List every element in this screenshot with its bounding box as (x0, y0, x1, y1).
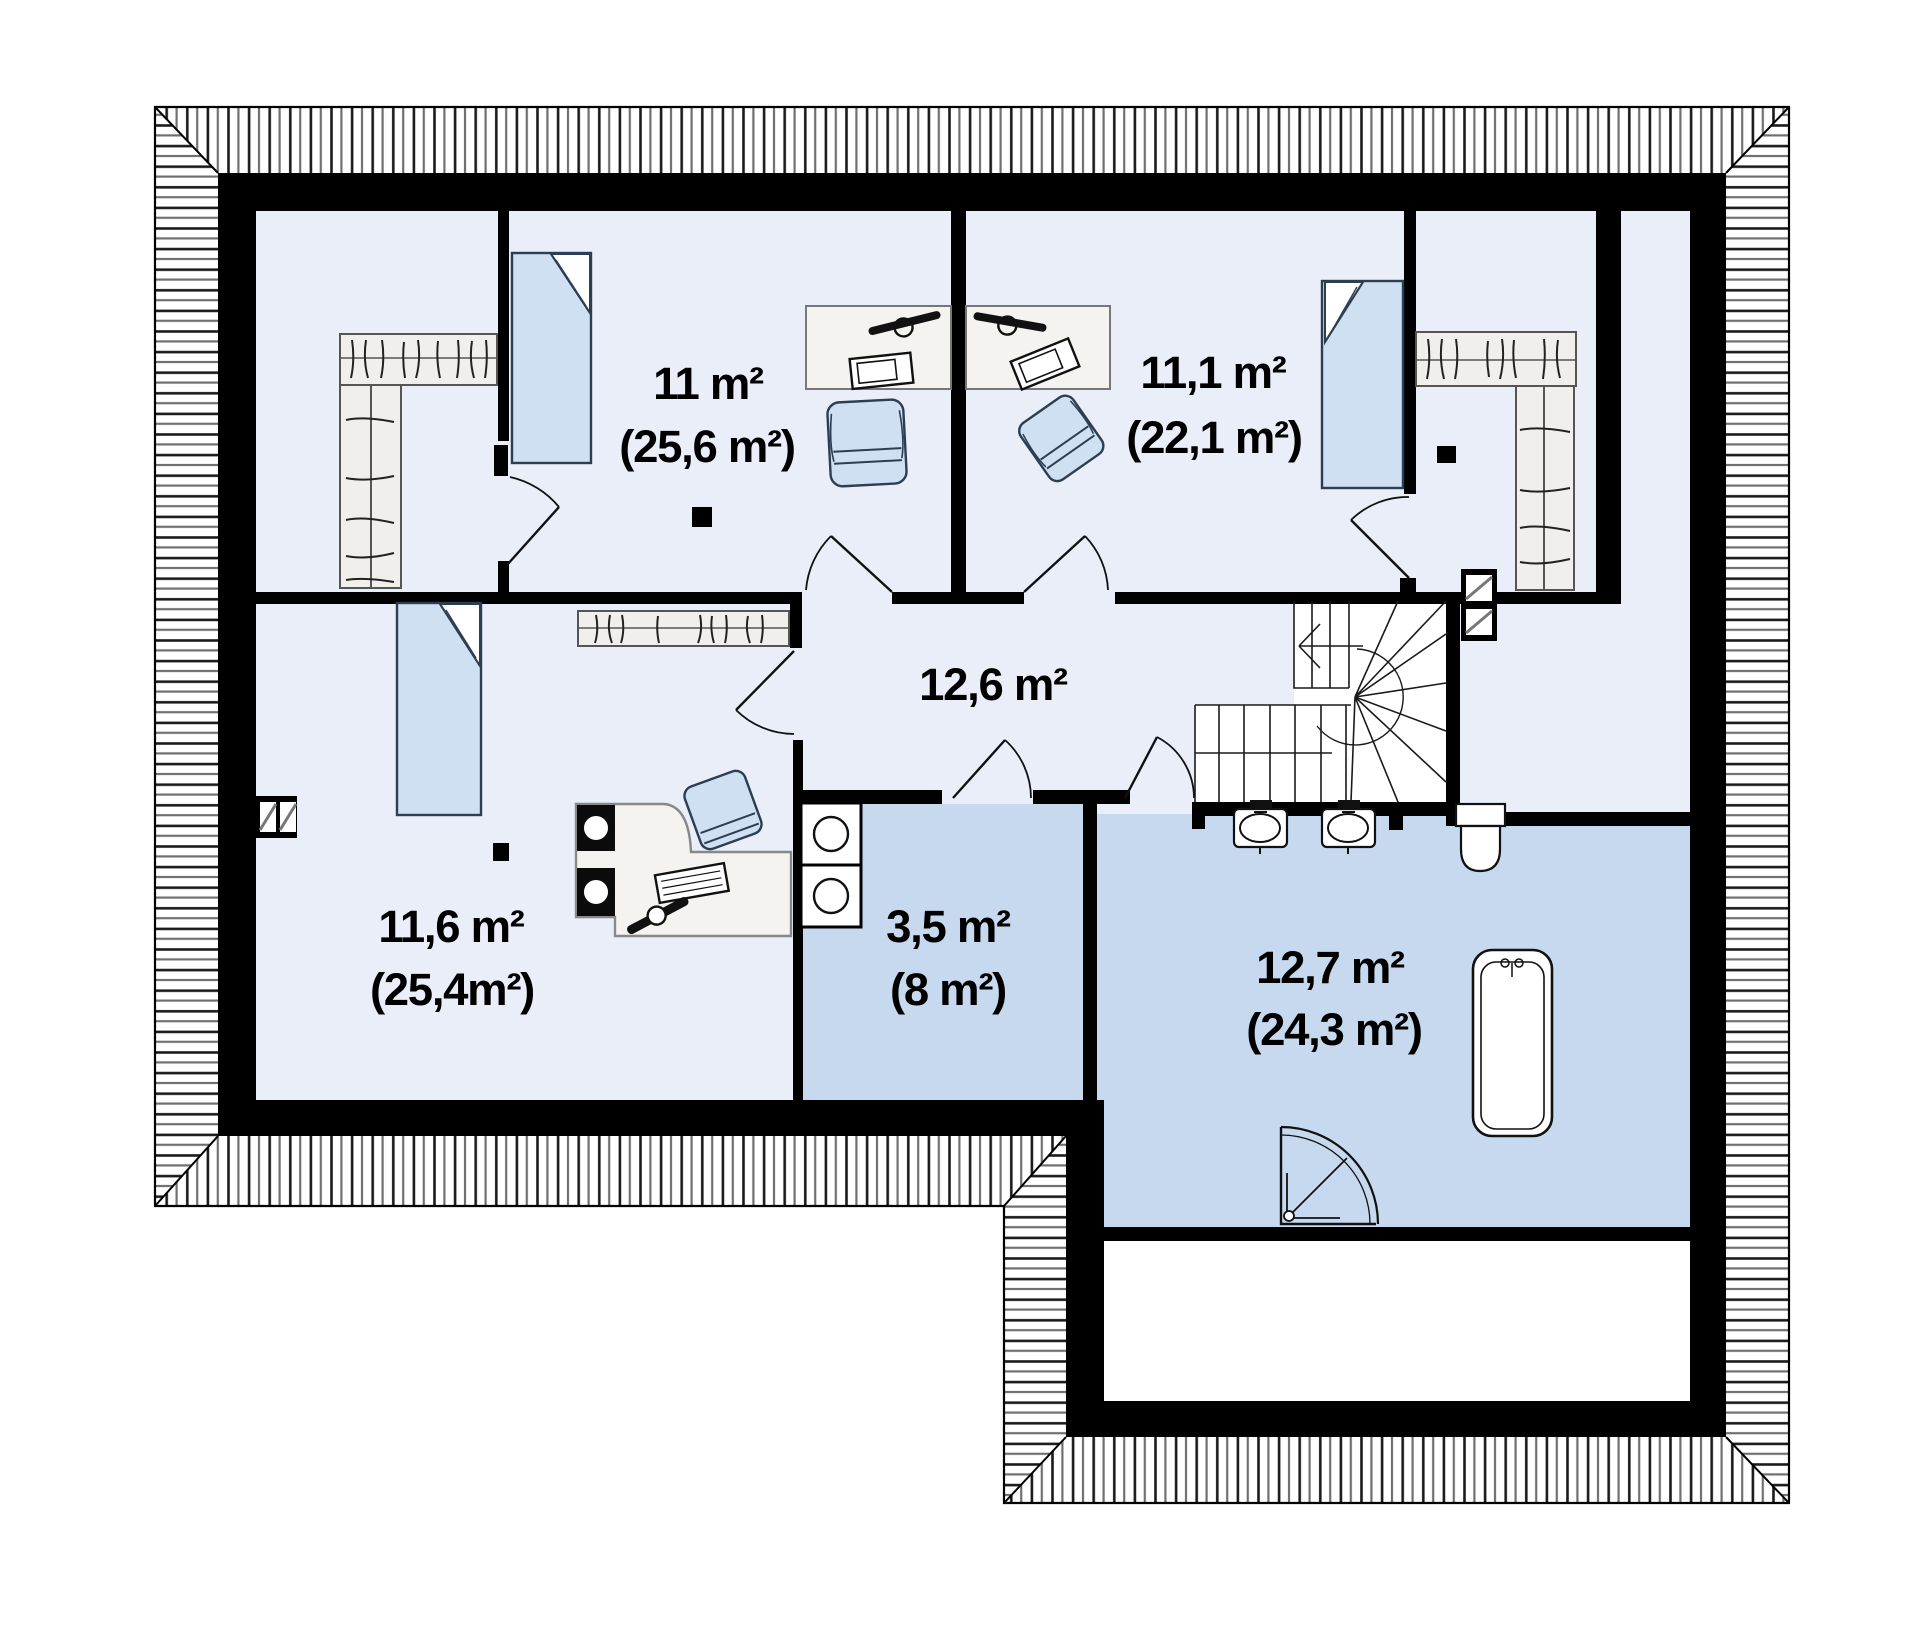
svg-text:11,6 m²: 11,6 m² (378, 901, 524, 952)
svg-text:(24,3 m²): (24,3 m²) (1246, 1004, 1421, 1055)
svg-text:(25,6 m²): (25,6 m²) (619, 421, 794, 472)
svg-text:(25,4m²): (25,4m²) (370, 964, 534, 1015)
svg-text:3,5 m²: 3,5 m² (886, 901, 1011, 952)
svg-text:12,6 m²: 12,6 m² (919, 659, 1068, 710)
svg-text:(22,1 m²): (22,1 m²) (1126, 412, 1301, 463)
svg-text:11 m²: 11 m² (653, 358, 764, 409)
svg-text:12,7 m²: 12,7 m² (1256, 942, 1405, 993)
svg-text:11,1 m²: 11,1 m² (1140, 347, 1286, 398)
svg-text:(8 m²): (8 m²) (890, 964, 1006, 1015)
